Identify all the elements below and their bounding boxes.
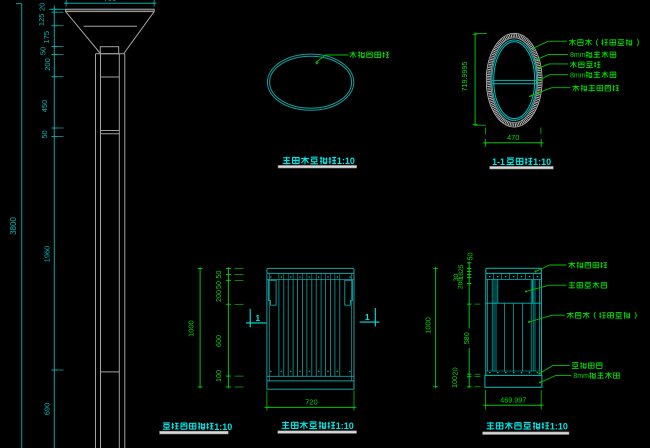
svg-text:200: 200	[458, 278, 465, 290]
svg-text:470: 470	[507, 133, 520, 142]
svg-text:469.997: 469.997	[500, 395, 526, 404]
svg-text:1-1: 1-1	[492, 157, 505, 167]
svg-text:450: 450	[40, 100, 49, 113]
svg-text:8mm: 8mm	[573, 373, 589, 380]
svg-text:1000: 1000	[187, 320, 196, 337]
svg-text:50: 50	[214, 271, 223, 279]
svg-text:200: 200	[214, 290, 223, 302]
svg-text:1:10: 1:10	[214, 422, 232, 432]
svg-text:1:10: 1:10	[337, 156, 355, 166]
svg-text:580: 580	[462, 332, 471, 344]
svg-text:690: 690	[43, 403, 52, 416]
svg-text:50: 50	[39, 47, 48, 55]
svg-text:1:10: 1:10	[336, 421, 354, 431]
svg-text:20: 20	[451, 367, 460, 375]
svg-text:1:10: 1:10	[550, 422, 568, 432]
svg-text:3800: 3800	[9, 217, 18, 235]
svg-text:100: 100	[450, 376, 459, 388]
svg-text:200: 200	[43, 58, 52, 71]
svg-text:700: 700	[104, 0, 117, 3]
svg-text:8mm: 8mm	[570, 72, 586, 79]
svg-text:175: 175	[42, 31, 51, 44]
svg-text:1:10: 1:10	[533, 157, 551, 167]
svg-text:125: 125	[37, 14, 46, 27]
svg-text:1: 1	[255, 313, 260, 323]
svg-text:719.9995: 719.9995	[460, 62, 469, 92]
svg-text:50: 50	[466, 253, 475, 261]
svg-text:600: 600	[214, 335, 223, 347]
svg-text:20: 20	[38, 3, 47, 11]
svg-text:1960: 1960	[43, 246, 52, 263]
svg-text:1: 1	[365, 312, 370, 322]
svg-text:1000: 1000	[424, 317, 433, 334]
svg-text:100: 100	[214, 370, 223, 382]
svg-text:50: 50	[214, 281, 223, 289]
svg-text:720: 720	[305, 397, 318, 406]
svg-text:50: 50	[40, 130, 49, 138]
svg-text:8mm: 8mm	[570, 52, 586, 59]
